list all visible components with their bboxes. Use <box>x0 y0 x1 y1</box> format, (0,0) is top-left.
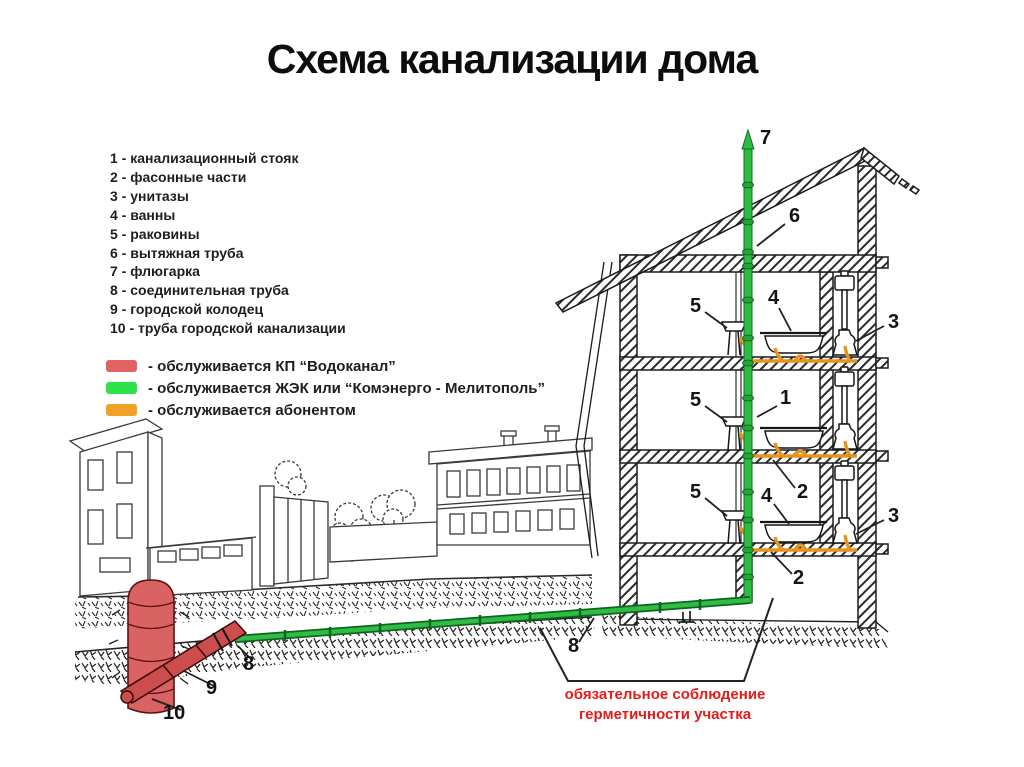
legend-item-6: 6 - вытяжная труба <box>110 244 440 263</box>
legend-item-9: 9 - городской колодец <box>110 300 440 319</box>
callout-1-stack: 1 <box>780 388 791 408</box>
callout-8-pipe-house: 8 <box>568 636 579 656</box>
legend-item-8: 8 - соединительная труба <box>110 281 440 300</box>
callout-8-pipe-well: 8 <box>243 654 254 674</box>
legend-item-1: 1 - канализационный стояк <box>110 149 440 168</box>
bath-floor3 <box>760 333 827 353</box>
page-title: Схема канализации дома <box>0 36 1024 83</box>
middle-building <box>429 426 592 545</box>
inner-wall <box>820 272 833 543</box>
legend-item-3: 3 - унитазы <box>110 187 440 206</box>
callout-10-city-pipe: 10 <box>163 703 185 723</box>
legend-item-5: 5 - раковины <box>110 225 440 244</box>
vent-cap-arrow <box>742 130 754 149</box>
legend-item-4: 4 - ванны <box>110 206 440 225</box>
callout-5-sink-floor2: 5 <box>690 390 701 410</box>
numbered-legend: 1 - канализационный стояк 2 - фасонные ч… <box>110 149 440 338</box>
toilet-floor3 <box>833 271 857 355</box>
callout-4-bath-floor1: 4 <box>761 486 772 506</box>
abonent-swatch <box>106 404 137 416</box>
left-building <box>70 419 162 596</box>
bath-floor1 <box>760 522 827 542</box>
callout-5-sink-floor3: 5 <box>690 296 701 316</box>
toilet-floor2 <box>833 367 857 449</box>
sealing-caption: обязательное соблюдение герметичности уч… <box>545 685 785 725</box>
zhek-label: - обслуживается ЖЭК или “Комэнерго - Мел… <box>148 380 545 397</box>
callout-5-sink-floor1: 5 <box>690 482 701 502</box>
callout-2-fitting-floor1: 2 <box>793 568 804 588</box>
callout-4-bath-floor3: 4 <box>768 288 779 308</box>
legend-item-10: 10 - труба городской канализации <box>110 319 440 338</box>
legend-item-7: 7 - флюгарка <box>110 262 440 281</box>
partitions <box>736 272 741 543</box>
service-legend-row-abonent: - обслуживается абонентом <box>106 402 626 420</box>
right-wall <box>858 166 876 628</box>
zhek-swatch <box>106 382 137 394</box>
diagram-page: Схема канализации дома 1 - канализационн… <box>0 0 1024 767</box>
callout-7-cowl: 7 <box>760 128 771 148</box>
callout-3-toilet-floor3: 3 <box>888 312 899 332</box>
callout-6-vent-pipe: 6 <box>789 206 800 226</box>
abonent-label: - обслуживается абонентом <box>148 402 356 419</box>
callout-2-fitting-floor2: 2 <box>797 482 808 502</box>
sealing-caption-line2: герметичности участка <box>545 705 785 725</box>
toilet-floor1 <box>833 461 857 543</box>
legend-item-2: 2 - фасонные части <box>110 168 440 187</box>
sealing-caption-line1: обязательное соблюдение <box>545 685 785 705</box>
left-wall <box>620 255 637 625</box>
fence <box>260 486 328 586</box>
wall <box>330 522 437 562</box>
vodokanal-swatch <box>106 360 137 372</box>
sewer-stack-green <box>742 130 754 603</box>
bath-floor2 <box>760 428 827 448</box>
vodokanal-label: - обслуживается КП “Водоканал” <box>148 358 396 375</box>
service-legend-row-zhek: - обслуживается ЖЭК или “Комэнерго - Мел… <box>106 380 626 398</box>
callout-9-well: 9 <box>206 678 217 698</box>
service-legend-row-vodokanal: - обслуживается КП “Водоканал” <box>106 358 626 376</box>
callout-3-toilet-floor1: 3 <box>888 506 899 526</box>
